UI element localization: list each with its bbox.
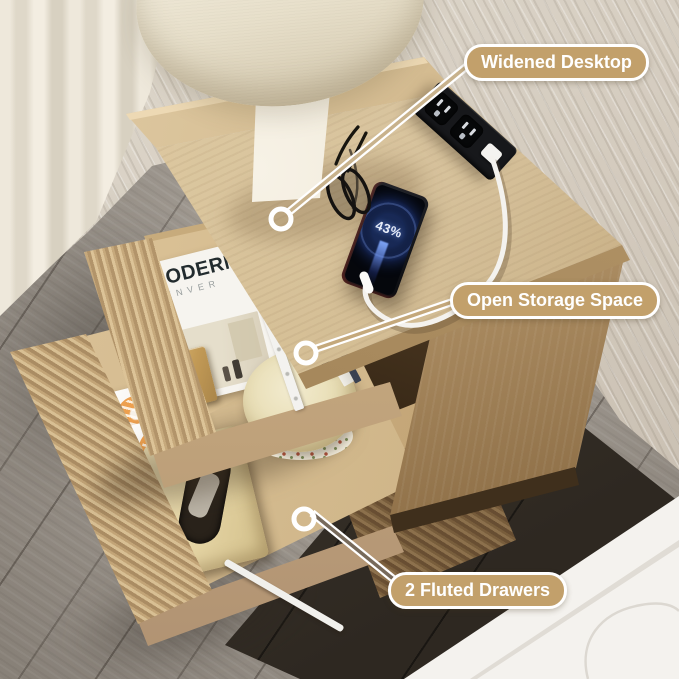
callout-widened-desktop: Widened Desktop	[464, 44, 649, 81]
outlet-ground-hole	[458, 132, 466, 140]
power-outlet	[422, 89, 460, 127]
callout-open-storage-space: Open Storage Space	[450, 282, 660, 319]
outlet-ground-hole	[433, 109, 441, 117]
power-outlet	[448, 112, 486, 150]
magazine-photo-figure	[232, 359, 243, 379]
usb-charger-plug	[480, 142, 503, 165]
outlet-slot	[436, 99, 444, 107]
outlet-slot	[461, 121, 469, 129]
product-photo: DOUGHNUT MIX MODERN DENVER	[0, 0, 679, 679]
magazine-photo-figure	[222, 366, 231, 382]
callout-fluted-drawers: 2 Fluted Drawers	[388, 572, 567, 609]
outlet-slot	[444, 105, 452, 113]
outlet-slot	[469, 128, 477, 136]
magazine-photo-building	[228, 317, 263, 362]
